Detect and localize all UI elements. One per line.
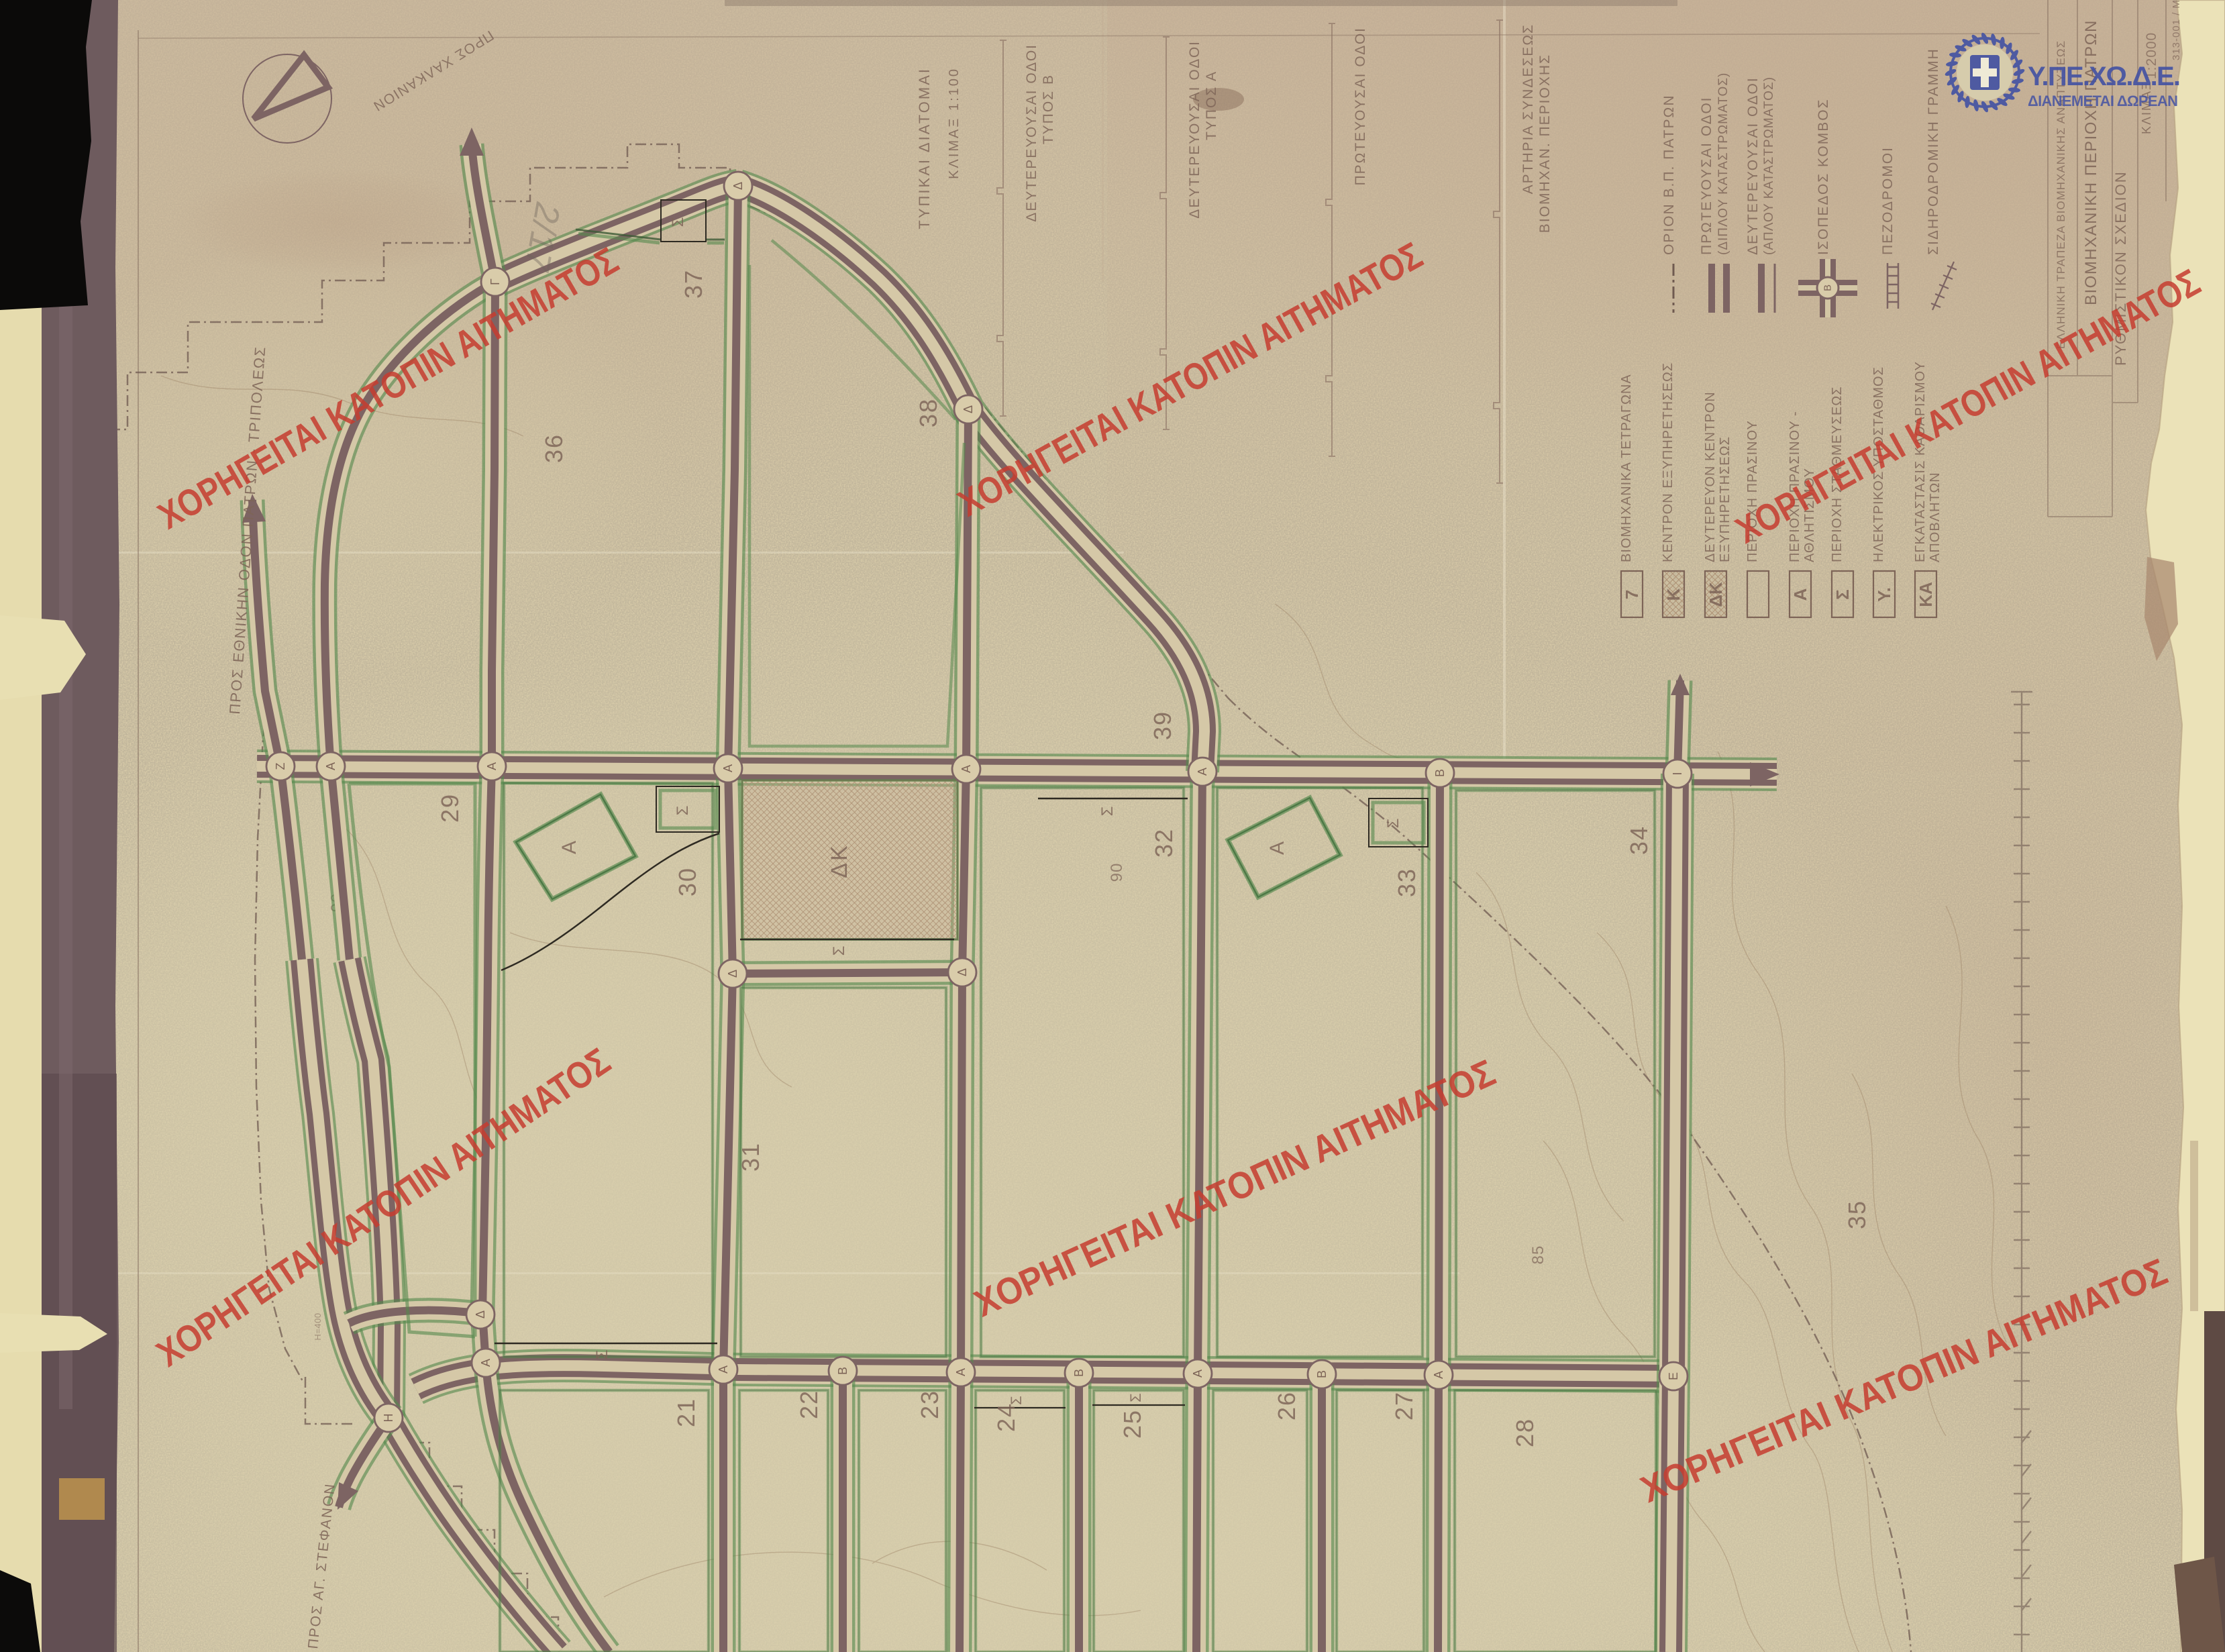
- svg-text:Δ: Δ: [726, 970, 739, 978]
- svg-text:Β: Β: [1315, 1370, 1329, 1378]
- svg-text:30: 30: [674, 867, 701, 896]
- svg-text:Γ: Γ: [488, 278, 502, 285]
- svg-text:Σ: Σ: [593, 1349, 611, 1360]
- svg-text:Κ: Κ: [1663, 588, 1684, 601]
- svg-text:90: 90: [1108, 863, 1126, 882]
- svg-text:ΙΣΟΠΕΔΟΣ ΚΟΜΒΟΣ: ΙΣΟΠΕΔΟΣ ΚΟΜΒΟΣ: [1816, 98, 1831, 255]
- svg-text:Β: Β: [836, 1367, 849, 1375]
- svg-text:25: 25: [1119, 1409, 1146, 1439]
- svg-text:32: 32: [1150, 828, 1178, 858]
- svg-text:22: 22: [795, 1390, 823, 1419]
- svg-text:ΔΕΥΤΕΡΕΥΟΥΣΑΙ ΟΔΟΙ: ΔΕΥΤΕΡΕΥΟΥΣΑΙ ΟΔΟΙ: [1187, 40, 1202, 219]
- svg-text:24: 24: [992, 1402, 1020, 1432]
- svg-text:ΑΡΤΗΡΙΑ ΣΥΝΔΕΣΕΩΣ: ΑΡΤΗΡΙΑ ΣΥΝΔΕΣΕΩΣ: [1520, 23, 1536, 194]
- svg-text:ΔΚ: ΔΚ: [1706, 582, 1726, 607]
- svg-text:Ζ: Ζ: [274, 763, 287, 770]
- svg-text:Β: Β: [1072, 1369, 1086, 1377]
- svg-text:ΔΕΥΤΕΡΕΥΟΥΣΑΙ ΟΔΟΙ: ΔΕΥΤΕΡΕΥΟΥΣΑΙ ΟΔΟΙ: [1745, 76, 1761, 255]
- svg-text:35: 35: [1843, 1200, 1871, 1229]
- svg-text:39: 39: [1149, 711, 1176, 740]
- svg-text:38: 38: [915, 398, 942, 427]
- svg-text:ΚΕΝΤΡΟΝ ΕΞΥΠΗΡΕΤΗΣΕΩΣ: ΚΕΝΤΡΟΝ ΕΞΥΠΗΡΕΤΗΣΕΩΣ: [1661, 362, 1675, 562]
- svg-text:23: 23: [916, 1390, 943, 1419]
- svg-text:Α: Α: [717, 1365, 730, 1374]
- svg-text:ΔΚ: ΔΚ: [827, 843, 852, 878]
- svg-text:Α: Α: [1790, 588, 1810, 601]
- svg-text:33: 33: [1393, 868, 1420, 897]
- svg-text:ΤΥΠΙΚΑΙ ΔΙΑΤΟΜΑΙ: ΤΥΠΙΚΑΙ ΔΙΑΤΟΜΑΙ: [916, 67, 933, 229]
- svg-text:Α: Α: [1266, 840, 1288, 855]
- svg-text:313-001 / ΜΑΙ: 313-001 / ΜΑΙ: [2171, 0, 2182, 60]
- svg-text:36: 36: [540, 433, 568, 463]
- svg-text:Σ: Σ: [674, 805, 692, 816]
- svg-text:Α: Α: [1191, 1370, 1204, 1378]
- svg-text:ΚΑ: ΚΑ: [1916, 582, 1936, 607]
- svg-text:Ι: Ι: [1671, 772, 1684, 775]
- svg-text:ΠΡΩΤΕΥΟΥΣΑΙ ΟΔΟΙ: ΠΡΩΤΕΥΟΥΣΑΙ ΟΔΟΙ: [1353, 27, 1368, 186]
- svg-text:ΔΕΥΤΕΡΕΥΟΥΣΑΙ ΟΔΟΙ: ΔΕΥΤΕΡΕΥΟΥΣΑΙ ΟΔΟΙ: [1024, 44, 1039, 222]
- svg-text:ΣΙΔΗΡΟΔΡΟΜΙΚΗ ΓΡΑΜΜΗ: ΣΙΔΗΡΟΔΡΟΜΙΚΗ ΓΡΑΜΜΗ: [1926, 48, 1941, 255]
- svg-text:Β: Β: [1822, 285, 1834, 291]
- svg-text:Σ: Σ: [1832, 589, 1853, 600]
- svg-text:29: 29: [436, 793, 464, 823]
- svg-text:Α: Α: [324, 762, 338, 770]
- svg-text:ΕΞΥΠΗΡΕΤΗΣΕΩΣ: ΕΞΥΠΗΡΕΤΗΣΕΩΣ: [1718, 436, 1732, 562]
- svg-text:Ε: Ε: [1667, 1372, 1680, 1380]
- svg-text:37: 37: [680, 269, 707, 299]
- svg-text:Σ: Σ: [1127, 1392, 1144, 1402]
- svg-text:Σ: Σ: [1098, 805, 1117, 817]
- svg-text:34: 34: [1625, 825, 1653, 855]
- svg-text:ΑΠΟΒΛΗΤΩΝ: ΑΠΟΒΛΗΤΩΝ: [1928, 472, 1943, 562]
- svg-text:Υ.: Υ.: [1874, 587, 1894, 602]
- svg-text:Α: Α: [960, 765, 973, 773]
- svg-text:Δ: Δ: [474, 1310, 487, 1319]
- svg-text:31: 31: [737, 1142, 764, 1172]
- svg-text:Η: Η: [382, 1414, 395, 1423]
- svg-text:85: 85: [1529, 1245, 1547, 1265]
- svg-text:ΕΓΚΑΤΑΣΤΑΣΙΣ ΚΑΘΑΡΙΣΜΟΥ: ΕΓΚΑΤΑΣΤΑΣΙΣ ΚΑΘΑΡΙΣΜΟΥ: [1913, 361, 1928, 562]
- svg-text:Α: Α: [721, 764, 735, 772]
- svg-text:Υ.ΠΕ.ΧΩ.Δ.Ε.: Υ.ΠΕ.ΧΩ.Δ.Ε.: [2028, 62, 2181, 91]
- svg-text:ΤΥΠΟΣ Α: ΤΥΠΟΣ Α: [1204, 70, 1219, 140]
- svg-text:ΠΡΩΤΕΥΟΥΣΑΙ ΟΔΟΙ: ΠΡΩΤΕΥΟΥΣΑΙ ΟΔΟΙ: [1699, 96, 1714, 255]
- svg-text:ΟΡΙΟΝ Β.Π. ΠΑΤΡΩΝ: ΟΡΙΟΝ Β.Π. ΠΑΤΡΩΝ: [1661, 95, 1677, 256]
- svg-text:(ΑΠΛΟΥ ΚΑΤΑΣΤΡΩΜΑΤΟΣ): (ΑΠΛΟΥ ΚΑΤΑΣΤΡΩΜΑΤΟΣ): [1762, 76, 1776, 255]
- svg-text:Α: Α: [485, 762, 499, 770]
- svg-text:Α: Α: [1196, 768, 1209, 776]
- svg-text:Σ: Σ: [669, 216, 687, 227]
- svg-text:ΒΙΟΜΗΧΑΝΙΚΑ ΤΕΤΡΑΓΩΝΑ: ΒΙΟΜΗΧΑΝΙΚΑ ΤΕΤΡΑΓΩΝΑ: [1619, 374, 1634, 562]
- svg-text:21: 21: [672, 1398, 700, 1427]
- svg-text:7: 7: [1622, 590, 1642, 599]
- svg-text:26: 26: [1273, 1391, 1300, 1421]
- svg-text:Α: Α: [479, 1359, 493, 1367]
- svg-text:Σ: Σ: [830, 945, 848, 956]
- svg-text:Δ: Δ: [962, 405, 975, 413]
- svg-text:Η=400: Η=400: [313, 1312, 323, 1340]
- svg-text:Α: Α: [558, 839, 580, 854]
- svg-text:ΔΙΑΝΕΜΕΤΑΙ ΔΩΡΕΑΝ: ΔΙΑΝΕΜΕΤΑΙ ΔΩΡΕΑΝ: [2028, 93, 2178, 109]
- svg-text:(ΔΙΠΛΟΥ ΚΑΤΑΣΤΡΩΜΑΤΟΣ): (ΔΙΠΛΟΥ ΚΑΤΑΣΤΡΩΜΑΤΟΣ): [1716, 72, 1730, 255]
- svg-text:ΒΙΟΜΗΧΑΝ. ΠΕΡΙΟΧΗΣ: ΒΙΟΜΗΧΑΝ. ΠΕΡΙΟΧΗΣ: [1537, 54, 1553, 233]
- svg-text:27: 27: [1390, 1391, 1418, 1421]
- svg-text:ΔΕΥΤΕΡΕΥΟΝ ΚΕΝΤΡΟΝ: ΔΕΥΤΕΡΕΥΟΝ ΚΕΝΤΡΟΝ: [1703, 391, 1718, 562]
- svg-text:Δ: Δ: [731, 182, 745, 190]
- svg-text:ΚΛΙΜΑΞ 1:100: ΚΛΙΜΑΞ 1:100: [947, 67, 962, 179]
- svg-text:Δ: Δ: [955, 968, 969, 976]
- svg-text:ΤΥΠΟΣ Β: ΤΥΠΟΣ Β: [1041, 74, 1056, 144]
- svg-text:ΠΕΖΟΔΡΟΜΟΙ: ΠΕΖΟΔΡΟΜΟΙ: [1880, 146, 1896, 255]
- svg-text:Β: Β: [1433, 769, 1447, 777]
- svg-text:Α: Α: [1432, 1371, 1445, 1379]
- svg-text:Α: Α: [954, 1368, 968, 1376]
- svg-text:Σ: Σ: [1384, 817, 1402, 829]
- svg-text:28: 28: [1511, 1418, 1539, 1447]
